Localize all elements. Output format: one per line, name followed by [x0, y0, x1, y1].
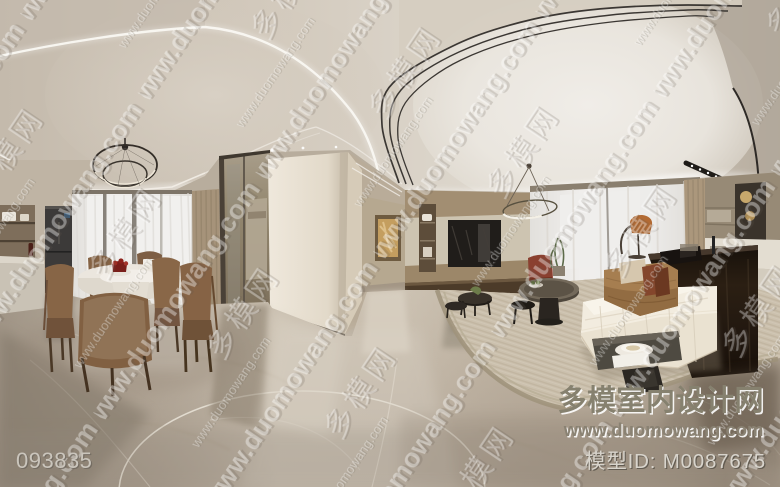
svg-text:093835: 093835 [16, 448, 92, 473]
svg-text:www.duomowang.com: www.duomowang.com [563, 419, 764, 440]
svg-text:模型ID: M0087675: 模型ID: M0087675 [585, 450, 766, 473]
svg-text:多模室内设计网: 多模室内设计网 [557, 383, 764, 417]
